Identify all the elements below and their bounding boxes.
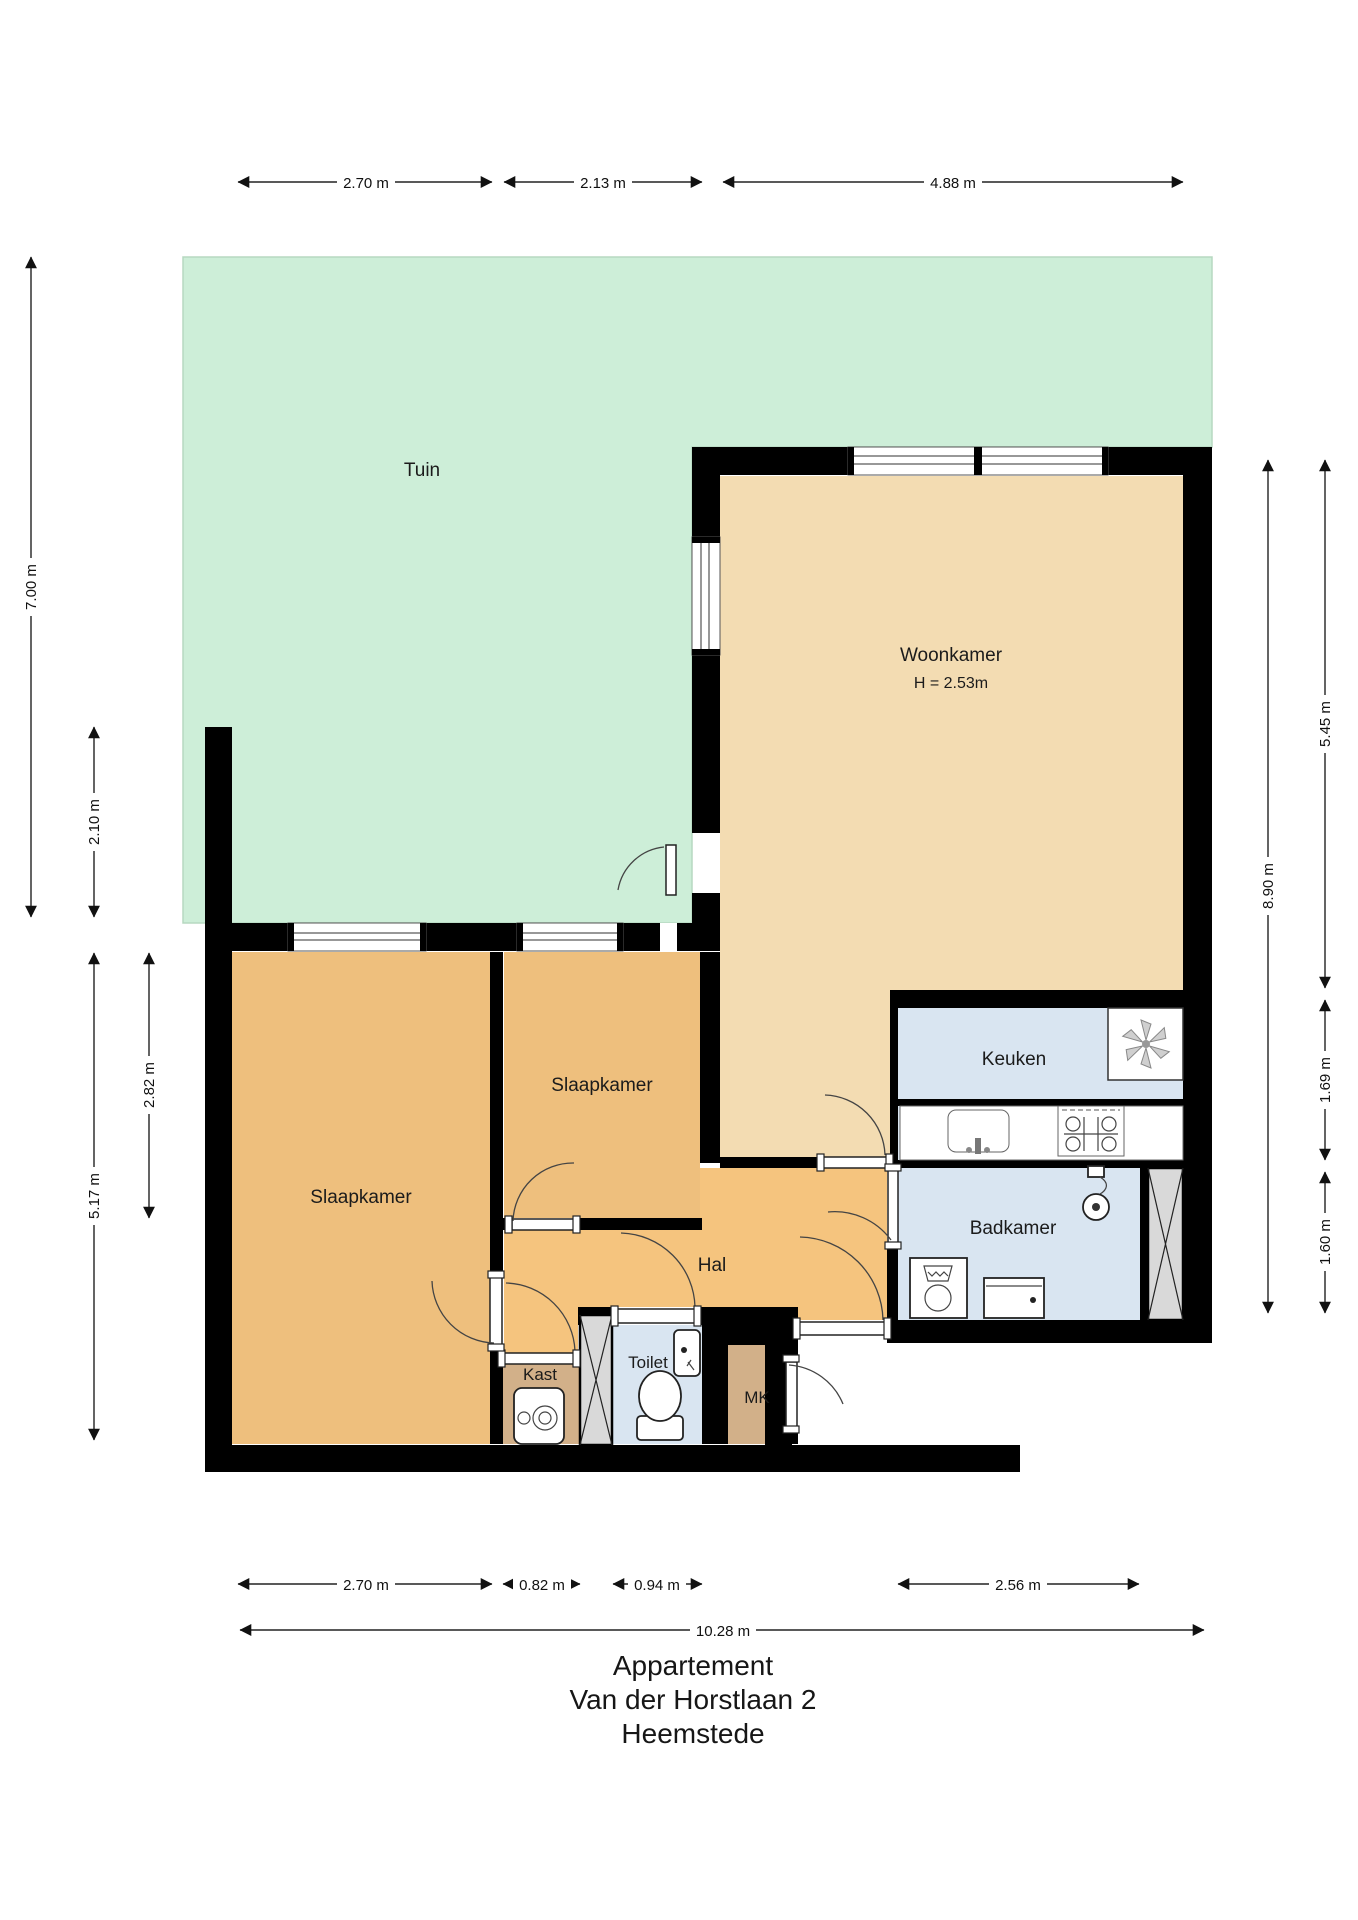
dimension-bottom-4: 2.56 m <box>898 1575 1139 1594</box>
floorplan-page: Tuin Woonkamer H = 2.53m Slaapkamer Slaa… <box>0 0 1358 1920</box>
toilet-bowl-icon <box>637 1371 683 1440</box>
bathroom-sink-icon <box>984 1278 1044 1318</box>
svg-text:5.45 m: 5.45 m <box>1317 701 1334 747</box>
door-mk <box>783 1355 843 1433</box>
svg-text:1.69 m: 1.69 m <box>1317 1057 1334 1103</box>
label-badkamer: Badkamer <box>970 1218 1057 1239</box>
dimension-bottom-2: 0.82 m <box>503 1575 580 1594</box>
svg-text:7.00 m: 7.00 m <box>23 564 40 610</box>
dimension-right-3: 1.69 m <box>1316 1000 1334 1160</box>
dimension-left-4: 2.82 m <box>140 953 158 1218</box>
kitchen-counter <box>898 1099 1183 1160</box>
label-keuken: Keuken <box>982 1049 1046 1070</box>
dimension-left-2: 2.10 m <box>85 727 103 917</box>
window-tuin-slaapkamer-2 <box>517 923 623 951</box>
svg-text:2.56 m: 2.56 m <box>995 1577 1041 1594</box>
svg-text:4.88 m: 4.88 m <box>930 175 976 192</box>
floorplan-drawing: Tuin Woonkamer H = 2.53m Slaapkamer Slaa… <box>0 0 1358 1920</box>
plan-title: Appartement Van der Horstlaan 2 Heemsted… <box>570 1650 817 1749</box>
dimension-right-2: 5.45 m <box>1316 460 1334 988</box>
label-tuin: Tuin <box>404 460 440 481</box>
dimension-overall-width: 10.28 m <box>240 1621 1204 1640</box>
window-woonkamer-left <box>692 537 720 655</box>
svg-text:5.17 m: 5.17 m <box>86 1173 103 1219</box>
label-toilet: Toilet <box>628 1353 668 1372</box>
svg-text:0.82 m: 0.82 m <box>519 1577 565 1594</box>
label-hal: Hal <box>698 1255 727 1276</box>
shaft-badkamer <box>1148 1168 1183 1320</box>
svg-text:2.70 m: 2.70 m <box>343 1577 389 1594</box>
label-mk: MK <box>744 1388 770 1407</box>
washing-machine-icon <box>910 1258 967 1318</box>
window-tuin-slaapkamer-1 <box>288 923 426 951</box>
svg-text:1.60 m: 1.60 m <box>1317 1219 1334 1265</box>
boiler-icon <box>514 1388 564 1444</box>
dimension-top-2: 2.13 m <box>504 173 702 192</box>
svg-text:2.13 m: 2.13 m <box>580 175 626 192</box>
label-slaapkamer-groot: Slaapkamer <box>310 1187 412 1208</box>
dimension-top-3: 4.88 m <box>723 173 1183 192</box>
ventilation-fan-icon <box>1108 1008 1183 1080</box>
svg-text:2.70 m: 2.70 m <box>343 175 389 192</box>
svg-text:8.90 m: 8.90 m <box>1260 863 1277 909</box>
dimension-left-3: 5.17 m <box>85 953 103 1440</box>
toilet-sink-icon <box>674 1330 700 1376</box>
dimension-bottom-3: 0.94 m <box>613 1575 702 1594</box>
title-building: Appartement <box>613 1650 774 1681</box>
sink-icon <box>948 1110 1009 1154</box>
dimension-right-1: 8.90 m <box>1259 460 1277 1313</box>
svg-text:0.94 m: 0.94 m <box>634 1577 680 1594</box>
dimension-top-1: 2.70 m <box>238 173 492 192</box>
svg-text:10.28 m: 10.28 m <box>696 1623 750 1640</box>
svg-text:2.82 m: 2.82 m <box>141 1062 158 1108</box>
svg-text:2.10 m: 2.10 m <box>86 799 103 845</box>
label-woonkamer: Woonkamer <box>900 645 1003 666</box>
label-slaapkamer-klein: Slaapkamer <box>551 1075 653 1096</box>
title-city: Heemstede <box>621 1718 764 1749</box>
label-kast: Kast <box>523 1365 557 1384</box>
shaft-hal <box>580 1315 612 1445</box>
dimension-bottom-1: 2.70 m <box>238 1575 492 1594</box>
dimension-left-1: 7.00 m <box>22 257 40 917</box>
window-woonkamer-top <box>848 447 1108 475</box>
dimension-right-4: 1.60 m <box>1316 1172 1334 1313</box>
label-woonkamer-height: H = 2.53m <box>914 675 988 692</box>
title-address: Van der Horstlaan 2 <box>570 1684 817 1715</box>
stove-icon <box>1058 1106 1124 1156</box>
